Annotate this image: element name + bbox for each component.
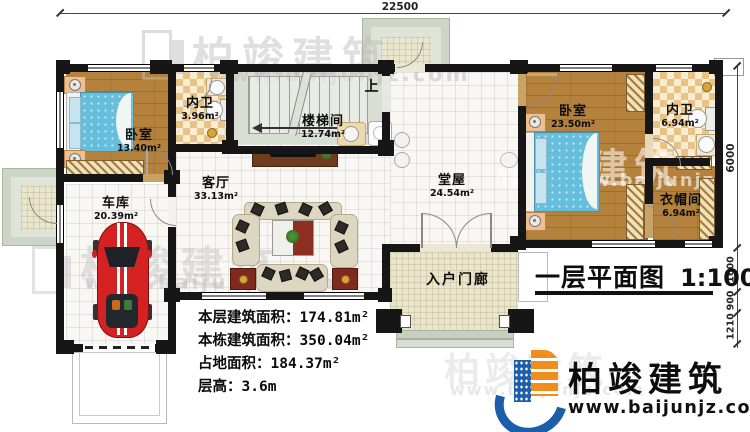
window bbox=[56, 92, 64, 148]
floor-drain bbox=[207, 128, 217, 138]
hall-pot bbox=[500, 152, 518, 168]
info-line: 本栋建筑面积：350.04m² bbox=[198, 329, 428, 352]
floor-drain bbox=[702, 82, 712, 92]
info-value: 174.81m² bbox=[300, 310, 370, 326]
dim-label-right: 6000 bbox=[725, 136, 737, 180]
room-name: 楼梯间 bbox=[283, 114, 363, 129]
car-engine-window bbox=[106, 294, 138, 328]
window bbox=[304, 292, 364, 300]
info-value: 184.37m² bbox=[271, 356, 341, 372]
wall-pier bbox=[510, 60, 528, 74]
plan-title-text: 一层平面图 bbox=[535, 263, 665, 292]
wall bbox=[715, 64, 723, 248]
room-name: 堂屋 bbox=[412, 173, 492, 188]
plan-scale: 1:100 bbox=[680, 264, 750, 292]
side-table-gold-dot bbox=[239, 275, 248, 284]
room-area: 20.39m² bbox=[76, 211, 156, 223]
wall-pier bbox=[510, 236, 526, 250]
room-area: 33.13m² bbox=[176, 191, 256, 203]
room-label-porch: 入户门廊 bbox=[408, 273, 508, 288]
brand-url: www.baijunjz.com bbox=[568, 398, 750, 418]
room-name: 衣帽间 bbox=[640, 193, 722, 208]
info-line: 占地面积：184.37m² bbox=[198, 352, 428, 375]
info-label: 层高： bbox=[198, 379, 242, 395]
room-name: 内卫 bbox=[645, 103, 715, 118]
room-area: 3.96m² bbox=[170, 111, 230, 123]
room-label-bath1: 内卫 3.96m² bbox=[170, 96, 230, 123]
dim-label-right: 1210 bbox=[726, 305, 737, 349]
wall-pier bbox=[220, 60, 238, 74]
room-label-living: 客厅 33.13m² bbox=[176, 176, 256, 203]
room-label-bath2: 内卫 6.94m² bbox=[645, 103, 715, 130]
window bbox=[685, 240, 712, 248]
hall-pot bbox=[394, 132, 410, 148]
window bbox=[656, 64, 692, 72]
floor-plan-page: 柏竣建筑 www.baijunjz.com 柏竣建筑 www.baijunjz.… bbox=[0, 0, 750, 432]
room-label-hall: 堂屋 24.54m² bbox=[412, 173, 492, 200]
info-value: 350.04m² bbox=[300, 333, 370, 349]
room-name: 入户门廊 bbox=[408, 273, 508, 288]
wardrobe bbox=[626, 74, 645, 112]
wall bbox=[234, 64, 395, 72]
wall-pier bbox=[378, 288, 392, 302]
plan-title: 一层平面图 1:100 bbox=[535, 258, 725, 294]
room-area: 24.54m² bbox=[412, 188, 492, 200]
room-label-bedroom2: 卧室 23.50m² bbox=[533, 104, 613, 131]
brand-logo-icon bbox=[492, 346, 566, 426]
door-leaf bbox=[527, 73, 557, 76]
info-label: 本栋建筑面积： bbox=[198, 333, 300, 349]
room-label-garage: 车库 20.39m² bbox=[76, 196, 156, 223]
info-value: 3.6m bbox=[242, 379, 277, 395]
title-underline bbox=[535, 291, 713, 295]
window bbox=[184, 64, 214, 72]
hall-pot bbox=[394, 152, 410, 168]
threshold bbox=[382, 76, 390, 112]
dim-tick bbox=[722, 9, 730, 17]
dim-label-top: 22500 bbox=[360, 1, 440, 13]
wall-pier bbox=[56, 340, 74, 354]
room-label-stairwell: 楼梯间 12.74m² bbox=[283, 114, 363, 141]
window bbox=[592, 240, 655, 248]
wall bbox=[425, 64, 518, 72]
dim-line-top bbox=[60, 13, 726, 14]
wall bbox=[234, 146, 390, 154]
wall bbox=[518, 106, 526, 244]
pillow bbox=[535, 172, 547, 204]
wall-pier bbox=[378, 60, 394, 74]
car-mirror bbox=[147, 250, 152, 258]
room-area: 6.94m² bbox=[640, 208, 722, 220]
lamp-icon bbox=[529, 215, 541, 227]
window bbox=[56, 205, 64, 243]
room-name: 客厅 bbox=[176, 176, 256, 191]
up-text: 上 bbox=[362, 80, 382, 95]
room-name: 卧室 bbox=[99, 128, 179, 143]
room-name: 车库 bbox=[76, 196, 156, 211]
window bbox=[560, 64, 612, 72]
wall bbox=[518, 64, 723, 72]
pillow bbox=[535, 138, 547, 170]
driveway-inner bbox=[79, 352, 160, 416]
sink bbox=[698, 136, 715, 153]
wall-pier bbox=[222, 140, 238, 154]
wall-pier bbox=[156, 340, 176, 354]
room-label-bedroom1: 卧室 13.40m² bbox=[99, 128, 179, 155]
garage-door-dashed bbox=[85, 346, 155, 349]
table-plant-icon bbox=[286, 230, 299, 243]
wall bbox=[56, 174, 143, 182]
wall-pier bbox=[56, 60, 70, 74]
room-area: 13.40m² bbox=[99, 143, 179, 155]
room-name: 内卫 bbox=[170, 96, 230, 111]
pillow bbox=[69, 97, 81, 123]
wall-pier bbox=[164, 288, 180, 302]
window bbox=[88, 64, 150, 72]
car-mirror bbox=[92, 250, 97, 258]
brand-name: 柏竣建筑 bbox=[568, 352, 728, 401]
window bbox=[202, 292, 266, 300]
info-line: 本层建筑面积：174.81m² bbox=[198, 306, 428, 329]
info-label: 本层建筑面积： bbox=[198, 310, 300, 326]
room-area: 12.74m² bbox=[283, 129, 363, 141]
car-engine-detail bbox=[124, 300, 132, 310]
room-area: 6.94m² bbox=[645, 118, 715, 130]
room-area: 23.50m² bbox=[533, 119, 613, 131]
logo-building-blue bbox=[514, 360, 531, 402]
building-info: 本层建筑面积：174.81m² 本栋建筑面积：350.04m² 占地面积：184… bbox=[198, 306, 428, 398]
stair-arrow-head bbox=[252, 123, 262, 133]
wall-pier bbox=[150, 60, 172, 74]
wall-pier bbox=[378, 140, 394, 156]
pillow bbox=[69, 123, 81, 149]
porch-pillar bbox=[508, 309, 534, 333]
info-line: 层高：3.6m bbox=[198, 375, 428, 398]
side-table-gold-dot bbox=[341, 275, 350, 284]
stair-up-label: 上 bbox=[362, 80, 382, 95]
room-name: 卧室 bbox=[533, 104, 613, 119]
car-windshield bbox=[104, 247, 140, 267]
info-label: 占地面积： bbox=[198, 356, 271, 372]
pillar-notch bbox=[499, 315, 510, 328]
lamp-icon bbox=[69, 79, 81, 91]
wall-pier bbox=[709, 60, 723, 74]
logo-building-orange bbox=[531, 350, 558, 396]
car-engine-detail bbox=[112, 300, 120, 310]
dim-line-right bbox=[737, 66, 738, 348]
room-label-cloakroom: 衣帽间 6.94m² bbox=[640, 193, 722, 220]
threshold bbox=[518, 74, 526, 106]
door-leaf bbox=[490, 213, 492, 248]
